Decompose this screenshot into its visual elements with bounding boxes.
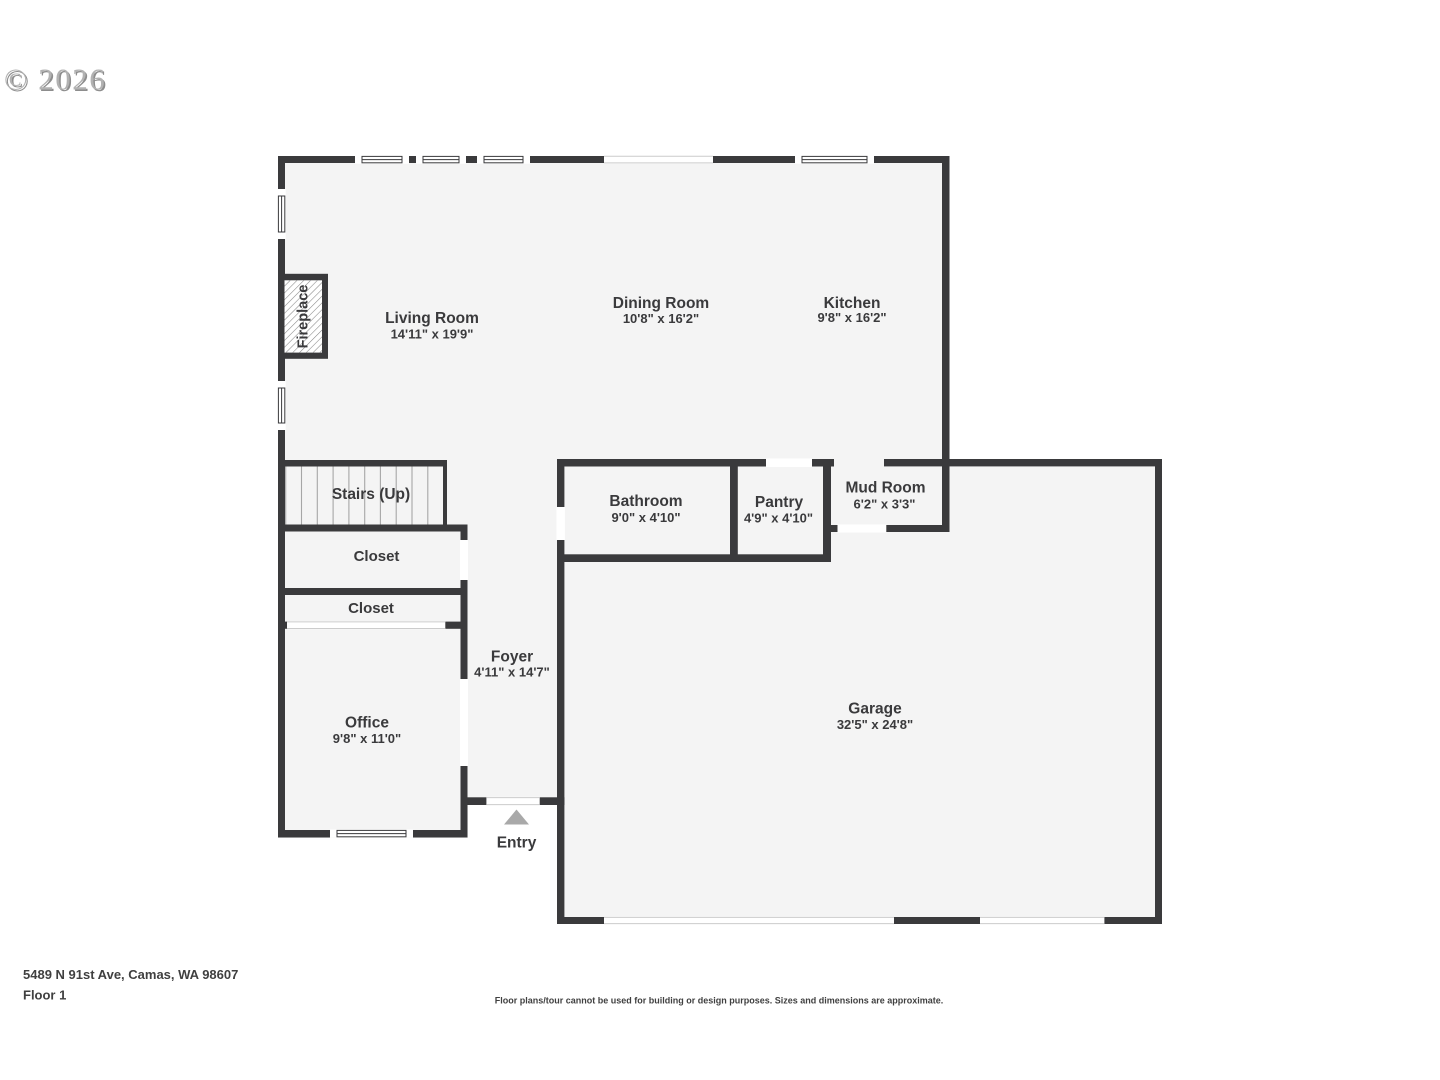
svg-text:Dining Room: Dining Room — [613, 295, 709, 312]
svg-text:Foyer: Foyer — [491, 649, 533, 666]
svg-text:Floor plans/tour cannot be use: Floor plans/tour cannot be used for buil… — [495, 996, 944, 1006]
svg-text:Entry: Entry — [497, 835, 537, 852]
svg-text:9'8" x 16'2": 9'8" x 16'2" — [817, 310, 886, 325]
svg-text:Office: Office — [345, 715, 389, 732]
svg-text:Fireplace: Fireplace — [296, 285, 312, 349]
svg-text:Pantry: Pantry — [755, 494, 804, 511]
svg-text:14'11" x 19'9": 14'11" x 19'9" — [391, 327, 474, 342]
svg-text:6'2" x 3'3": 6'2" x 3'3" — [854, 497, 916, 512]
svg-text:9'8" x 11'0": 9'8" x 11'0" — [333, 731, 401, 746]
svg-text:Bathroom: Bathroom — [609, 493, 682, 510]
svg-text:Garage: Garage — [848, 701, 902, 718]
svg-text:4'9" x 4'10": 4'9" x 4'10" — [744, 511, 813, 526]
svg-text:Mud Room: Mud Room — [845, 480, 925, 497]
svg-text:© 2026: © 2026 — [4, 61, 106, 96]
svg-text:Living Room: Living Room — [385, 310, 479, 327]
svg-text:9'0" x 4'10": 9'0" x 4'10" — [611, 510, 680, 525]
svg-text:4'11" x 14'7": 4'11" x 14'7" — [474, 665, 550, 680]
svg-text:32'5" x 24'8": 32'5" x 24'8" — [837, 717, 913, 732]
svg-text:Floor 1: Floor 1 — [23, 988, 66, 1003]
svg-text:Closet: Closet — [354, 548, 400, 565]
svg-text:5489 N 91st Ave, Camas, WA 986: 5489 N 91st Ave, Camas, WA 98607 — [23, 967, 238, 982]
svg-text:Closet: Closet — [348, 600, 394, 617]
svg-text:10'8" x 16'2": 10'8" x 16'2" — [623, 311, 699, 326]
svg-text:Stairs (Up): Stairs (Up) — [332, 486, 410, 503]
